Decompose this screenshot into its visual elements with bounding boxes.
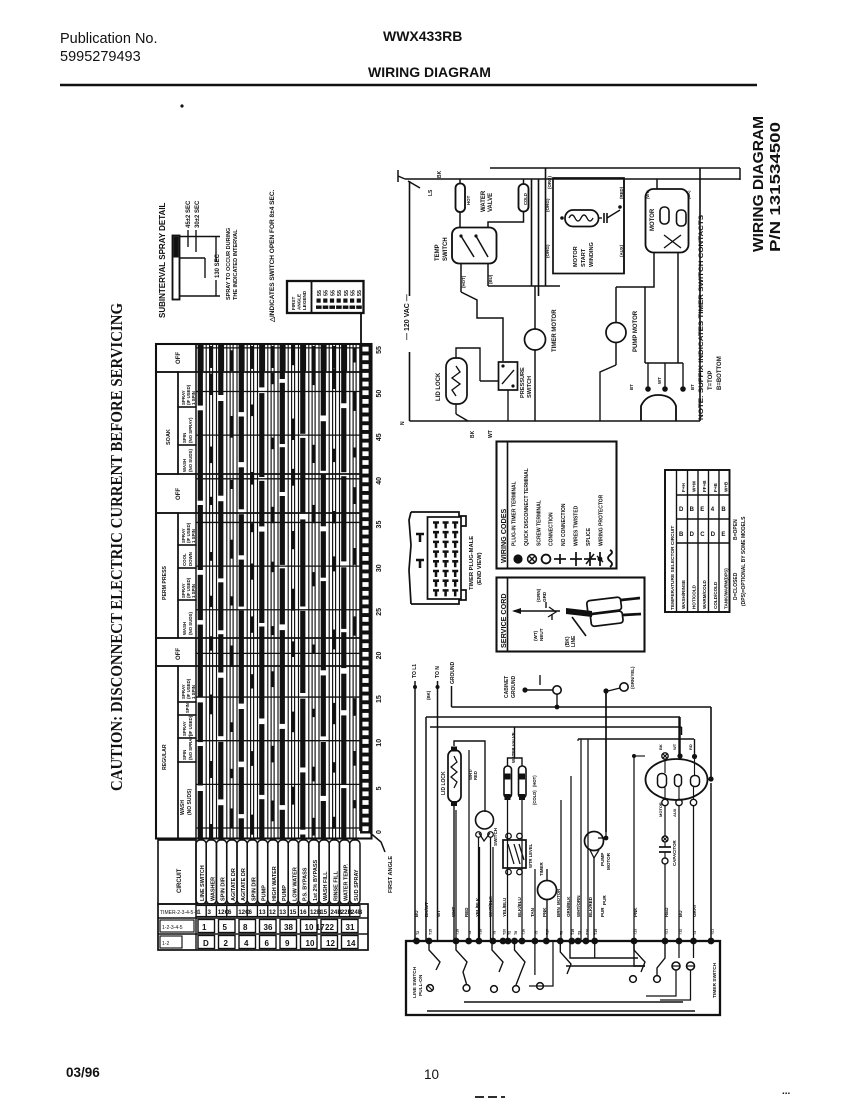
svg-text:(NO SPRAY): (NO SPRAY) xyxy=(188,417,193,443)
svg-text:TEMPERATURE SELECTOR CIRCUIT: TEMPERATURE SELECTOR CIRCUIT xyxy=(670,526,676,610)
svg-text:45±2 SEC: 45±2 SEC xyxy=(186,200,192,228)
svg-text:MOTOR: MOTOR xyxy=(658,802,663,817)
svg-text:LOW WATER: LOW WATER xyxy=(292,867,298,901)
svg-text:E: E xyxy=(700,507,704,513)
svg-text:(IF USED): (IF USED) xyxy=(188,715,193,736)
svg-text:BK: BK xyxy=(437,170,443,178)
svg-text:WIRING CODES: WIRING CODES xyxy=(499,508,508,563)
svg-text:6: 6 xyxy=(265,939,270,948)
svg-text:COOL: COOL xyxy=(182,553,187,566)
svg-text:WIRING PROTECTOR: WIRING PROTECTOR xyxy=(598,494,604,546)
svg-text:TO N: TO N xyxy=(435,666,441,678)
svg-text:TIMER PLUG-MALE: TIMER PLUG-MALE xyxy=(469,536,475,590)
svg-text:(WT): (WT) xyxy=(533,630,538,641)
svg-text:LID LOCK: LID LOCK xyxy=(441,771,447,795)
svg-text:BT: BT xyxy=(629,384,634,390)
svg-text:TO L1: TO L1 xyxy=(412,664,418,678)
svg-text:T8: T8 xyxy=(514,931,518,935)
svg-text:T=TOP: T=TOP xyxy=(708,371,714,390)
svg-text:WT: WT xyxy=(436,910,441,917)
svg-text:SWITCH: SWITCH xyxy=(527,376,533,398)
svg-text:TIMER: TIMER xyxy=(539,862,544,876)
svg-text:B=BOTTOM: B=BOTTOM xyxy=(717,356,723,390)
svg-text:1 SPIN: 1 SPIN xyxy=(191,685,196,699)
svg-text:PUMP: PUMP xyxy=(262,885,268,901)
svg-text:AUX: AUX xyxy=(672,808,677,817)
svg-text:HOT: HOT xyxy=(466,195,471,205)
svg-text:SERVICE CORD: SERVICE CORD xyxy=(499,593,508,648)
svg-text:T8: T8 xyxy=(468,931,472,935)
svg-text:WATER: WATER xyxy=(481,190,487,212)
svg-text:WIRING DIAGRAM: WIRING DIAGRAM xyxy=(368,64,491,80)
svg-text:TIMER-2-3-4-5-B: TIMER-2-3-4-5-B xyxy=(160,910,199,916)
svg-text:55: 55 xyxy=(317,290,323,296)
svg-text:03/96: 03/96 xyxy=(66,1065,100,1080)
svg-text:BLK/BLU: BLK/BLU xyxy=(517,897,522,917)
svg-text:5: 5 xyxy=(223,923,228,932)
svg-text:SPIN: SPIN xyxy=(182,433,187,443)
svg-text:E: E xyxy=(721,532,725,538)
svg-text:BLK/RED: BLK/RED xyxy=(588,896,593,917)
svg-text:REGULAR: REGULAR xyxy=(162,744,168,770)
svg-text:T16: T16 xyxy=(521,929,525,935)
svg-text:T15: T15 xyxy=(428,929,432,935)
svg-text:40: 40 xyxy=(376,477,383,485)
svg-text:LINE: LINE xyxy=(571,635,577,647)
svg-text:PUR: PUR xyxy=(600,907,605,917)
svg-text:MOTOR: MOTOR xyxy=(606,852,611,870)
svg-text:ANGLE: ANGLE xyxy=(297,294,302,310)
svg-text:NEUT: NEUT xyxy=(539,628,544,641)
svg-text:RED: RED xyxy=(473,771,478,780)
svg-text:FF+B: FF+B xyxy=(702,480,707,492)
svg-text:NO CONNECTION: NO CONNECTION xyxy=(561,503,567,546)
svg-text:1: 1 xyxy=(202,923,207,932)
svg-text:1st 2% BYPASS: 1st 2% BYPASS xyxy=(313,860,319,901)
svg-text:LINE SWITCH: LINE SWITCH xyxy=(412,966,418,998)
svg-text:SPLICE: SPLICE xyxy=(586,527,592,546)
svg-text:FIRST: FIRST xyxy=(291,297,296,310)
svg-text:(NO SUDS): (NO SUDS) xyxy=(187,789,193,815)
svg-text:(BK): (BK) xyxy=(426,690,431,700)
svg-text:T17: T17 xyxy=(546,929,550,935)
svg-text:SUD SPRAY: SUD SPRAY xyxy=(354,869,360,901)
svg-text:GROUND: GROUND xyxy=(511,675,517,698)
svg-text:(GRN/YEL): (GRN/YEL) xyxy=(630,666,635,689)
svg-text:B: B xyxy=(679,532,684,538)
svg-text:38: 38 xyxy=(284,923,293,932)
svg-text:22: 22 xyxy=(325,923,334,932)
svg-text:WATER TEMP.: WATER TEMP. xyxy=(344,863,350,901)
svg-text:(END VIEW): (END VIEW) xyxy=(477,552,483,585)
svg-text:— 120 VAC —: — 120 VAC — xyxy=(404,294,411,340)
svg-text:1-2-3-4-5: 1-2-3-4-5 xyxy=(162,925,183,931)
svg-text:55: 55 xyxy=(376,346,383,354)
svg-text:3: 3 xyxy=(207,909,211,916)
svg-text:B: B xyxy=(690,507,695,513)
svg-text:T18: T18 xyxy=(478,929,482,935)
svg-text:(GRN): (GRN) xyxy=(536,588,541,602)
svg-text:(HOT): (HOT) xyxy=(532,775,537,787)
svg-text:WT: WT xyxy=(672,743,677,750)
svg-text:WHT/ORN: WHT/ORN xyxy=(576,896,581,918)
svg-text:PUMP MOTOR: PUMP MOTOR xyxy=(633,310,639,352)
svg-text:CONNECTION: CONNECTION xyxy=(549,512,555,546)
svg-text:55: 55 xyxy=(357,290,363,296)
svg-text:LID LOCK: LID LOCK xyxy=(436,372,442,401)
svg-text:1 SPIN: 1 SPIN xyxy=(191,529,196,543)
svg-text:WASH: WASH xyxy=(182,622,187,635)
svg-text:SPRAY: SPRAY xyxy=(182,721,187,736)
svg-text:CAUTION: DISCONNECT ELECTRIC C: CAUTION: DISCONNECT ELECTRIC CURRENT BEF… xyxy=(107,303,126,791)
svg-text:T12: T12 xyxy=(678,929,682,935)
svg-text:TIMER MOTOR: TIMER MOTOR xyxy=(552,309,558,352)
svg-text:0: 0 xyxy=(376,830,383,834)
svg-text:SUBINTERVAL SPRAY DETAIL: SUBINTERVAL SPRAY DETAIL xyxy=(158,202,167,318)
svg-text:SPIN: SPIN xyxy=(182,750,187,760)
svg-text:RD: RD xyxy=(688,744,693,750)
svg-text:13: 13 xyxy=(279,909,286,916)
svg-text:WT: WT xyxy=(657,377,662,384)
svg-text:(HOT): (HOT) xyxy=(461,275,466,288)
svg-text:PRESSURE: PRESSURE xyxy=(520,367,526,398)
svg-text:WTR LEVEL: WTR LEVEL xyxy=(528,843,533,868)
svg-text:SPIN: SPIN xyxy=(185,703,190,713)
svg-text:BT: BT xyxy=(690,384,695,390)
svg-text:T2: T2 xyxy=(507,931,511,935)
svg-text:SWITCH: SWITCH xyxy=(493,827,498,846)
svg-text:45: 45 xyxy=(376,433,383,441)
svg-text:Publication No.: Publication No. xyxy=(60,31,158,47)
svg-text:VALVE: VALVE xyxy=(488,193,494,212)
svg-text:COLD/COLD: COLD/COLD xyxy=(713,581,718,609)
svg-text:B: B xyxy=(721,507,726,513)
svg-text:T2: T2 xyxy=(416,931,420,935)
svg-text:LS: LS xyxy=(428,189,434,196)
svg-text:OFF: OFF xyxy=(176,352,182,364)
svg-text:SPIN DIR: SPIN DIR xyxy=(221,877,227,901)
svg-text:GRD: GRD xyxy=(542,591,547,602)
svg-text:THE INDICATED INTERVAL: THE INDICATED INTERVAL xyxy=(233,229,239,300)
svg-text:P/N 131534500: P/N 131534500 xyxy=(767,122,784,252)
svg-text:BU: BU xyxy=(414,911,419,918)
svg-text:6: 6 xyxy=(248,909,252,916)
svg-text:PLUG-IN TIMER TERMINAL: PLUG-IN TIMER TERMINAL xyxy=(512,481,518,546)
svg-text:13: 13 xyxy=(259,909,266,916)
svg-text:C: C xyxy=(700,532,705,538)
svg-text:55: 55 xyxy=(337,290,343,296)
svg-text:4: 4 xyxy=(244,939,249,948)
svg-text:10: 10 xyxy=(376,739,383,747)
svg-text:T9: T9 xyxy=(492,931,496,935)
svg-text:16: 16 xyxy=(300,909,307,916)
svg-text:1-2: 1-2 xyxy=(162,941,169,947)
svg-text:T21: T21 xyxy=(664,929,668,935)
svg-text:T8: T8 xyxy=(560,931,564,935)
svg-text:D: D xyxy=(679,507,684,513)
svg-text:CAPACITOR: CAPACITOR xyxy=(672,839,677,866)
svg-text:W+M: W+M xyxy=(692,481,697,492)
svg-text:GROUND: GROUND xyxy=(450,661,456,684)
svg-text:1: 1 xyxy=(197,909,201,916)
svg-text:(BK): (BK) xyxy=(686,190,691,199)
svg-text:AGITATE DR: AGITATE DR xyxy=(231,868,237,901)
svg-text:W+B: W+B xyxy=(723,481,728,492)
svg-text:15: 15 xyxy=(289,909,296,916)
svg-text:SPRAY TO OCCUR DURING: SPRAY TO OCCUR DURING xyxy=(226,228,232,300)
svg-text:(COLD): (COLD) xyxy=(532,790,537,805)
svg-text:WINDING: WINDING xyxy=(589,242,595,267)
svg-text:30: 30 xyxy=(376,564,383,572)
svg-text:WASH: WASH xyxy=(182,459,187,472)
svg-text:AGITATE DR: AGITATE DR xyxy=(241,868,247,901)
svg-text:YEL/BLK: YEL/BLK xyxy=(475,897,480,917)
svg-text:YEL/BLU: YEL/BLU xyxy=(502,898,507,917)
svg-text:20: 20 xyxy=(376,652,383,660)
svg-text:55: 55 xyxy=(344,290,350,296)
svg-text:SPIN DIR: SPIN DIR xyxy=(251,877,257,901)
svg-text:5995279493: 5995279493 xyxy=(60,49,141,65)
svg-text:WARM/COLD: WARM/COLD xyxy=(702,579,707,609)
svg-text:55: 55 xyxy=(351,290,357,296)
svg-text:(ORG): (ORG) xyxy=(547,176,552,189)
svg-text:(WT): (WT) xyxy=(645,189,650,199)
svg-text:D: D xyxy=(690,532,695,538)
svg-text:8: 8 xyxy=(243,923,248,932)
svg-text:SOAK: SOAK xyxy=(166,429,172,445)
svg-text:△INDICATES SWITCH OPEN FOR 8±4: △INDICATES SWITCH OPEN FOR 8±4 SEC. xyxy=(269,189,276,323)
svg-text:35: 35 xyxy=(376,521,383,529)
svg-text:(ORG): (ORG) xyxy=(545,244,550,258)
svg-text:HIGH WATER: HIGH WATER xyxy=(272,866,278,901)
svg-text:12: 12 xyxy=(326,939,335,948)
svg-text:LEGEND: LEGEND xyxy=(302,290,307,310)
svg-text:WWX433RB: WWX433RB xyxy=(383,28,462,44)
svg-text:PNK: PNK xyxy=(542,907,547,917)
svg-text:D=CLOSED: D=CLOSED xyxy=(733,572,739,600)
svg-text:(DPS)=OPTIONAL BY SOME MODELS: (DPS)=OPTIONAL BY SOME MODELS xyxy=(741,516,747,606)
svg-text:10: 10 xyxy=(424,1067,439,1082)
svg-text:T19: T19 xyxy=(594,929,598,935)
svg-text:B=OPEN: B=OPEN xyxy=(733,519,739,540)
svg-text:LINE SWITCH: LINE SWITCH xyxy=(200,865,206,901)
svg-text:SWITCH: SWITCH xyxy=(443,237,449,261)
svg-text:T20: T20 xyxy=(502,929,506,935)
svg-text:5: 5 xyxy=(376,786,383,790)
svg-text:T19: T19 xyxy=(571,929,575,935)
svg-text:55: 55 xyxy=(324,290,330,296)
svg-text:F+B: F+B xyxy=(713,483,718,492)
svg-text:31: 31 xyxy=(346,923,355,932)
svg-text:GRAY: GRAY xyxy=(692,904,697,917)
svg-text:MOTOR: MOTOR xyxy=(573,246,579,267)
svg-text:PERM PRESS: PERM PRESS xyxy=(162,565,168,600)
svg-text:BRN: BRN xyxy=(556,907,561,917)
svg-text:QUICK DISCONNECT TERMINAL: QUICK DISCONNECT TERMINAL xyxy=(524,468,530,546)
svg-text:T3: T3 xyxy=(577,931,581,935)
svg-text:10 17: 10 17 xyxy=(305,923,326,932)
svg-text:WHT: WHT xyxy=(451,907,456,917)
svg-text:COLD: COLD xyxy=(523,193,528,205)
svg-text:12: 12 xyxy=(269,909,276,916)
svg-text:START: START xyxy=(581,248,587,267)
svg-text:14: 14 xyxy=(347,939,356,948)
svg-text:130 SEC: 130 SEC xyxy=(215,253,221,278)
svg-text:2: 2 xyxy=(224,939,229,948)
svg-text:(ORG): (ORG) xyxy=(545,198,550,212)
svg-text:PUMP: PUMP xyxy=(282,885,288,901)
svg-text:RED: RED xyxy=(464,907,469,917)
svg-text:HOT/COLD: HOT/COLD xyxy=(692,584,697,609)
svg-text:6: 6 xyxy=(228,909,232,916)
svg-text:N: N xyxy=(400,421,406,425)
svg-text:36: 36 xyxy=(264,923,273,932)
svg-text:PUR: PUR xyxy=(602,895,607,905)
svg-text:BK: BK xyxy=(658,744,663,750)
svg-text:15: 15 xyxy=(376,695,383,703)
svg-text:TANK/WARM(DPS): TANK/WARM(DPS) xyxy=(723,568,728,609)
svg-text:T10: T10 xyxy=(585,929,589,935)
svg-text:15: 15 xyxy=(320,909,327,916)
svg-text:WASH: WASH xyxy=(180,800,186,815)
svg-text:T5: T5 xyxy=(534,931,538,935)
svg-text:WASH FILL: WASH FILL xyxy=(323,871,329,901)
svg-text:WT: WT xyxy=(488,430,494,438)
svg-text:P.S. BYPASS: P.S. BYPASS xyxy=(303,867,309,901)
svg-text:NOTE: SUFFIX INDICATES TIMER S: NOTE: SUFFIX INDICATES TIMER SWITCH CONT… xyxy=(698,215,705,420)
svg-text:MOTOR: MOTOR xyxy=(650,208,656,231)
svg-text:T19: T19 xyxy=(455,929,459,935)
svg-text:CABINET: CABINET xyxy=(504,676,510,698)
svg-text:(NO SPRAY): (NO SPRAY) xyxy=(188,734,193,760)
svg-text:(NO SUDS): (NO SUDS) xyxy=(188,449,193,472)
svg-text:9: 9 xyxy=(285,939,290,948)
svg-text:OFF: OFF xyxy=(176,648,182,660)
svg-text:1 SPIN: 1 SPIN xyxy=(191,584,196,598)
svg-text:RINSE FILL: RINSE FILL xyxy=(333,870,339,901)
svg-text:DOWN: DOWN xyxy=(188,552,193,566)
svg-text:OFF: OFF xyxy=(176,488,182,500)
svg-text:CIRCUIT: CIRCUIT xyxy=(177,868,183,893)
svg-text:WIRES TWISTED: WIRES TWISTED xyxy=(574,505,580,546)
svg-text:(NO SUDS): (NO SUDS) xyxy=(188,612,193,635)
svg-text:TIMER SWITCH: TIMER SWITCH xyxy=(712,962,718,998)
svg-text:WIRING DIAGRAM: WIRING DIAGRAM xyxy=(750,116,767,252)
svg-text:WASH/RINSE: WASH/RINSE xyxy=(681,580,686,609)
svg-text:F+H: F+H xyxy=(681,483,686,492)
svg-text:10: 10 xyxy=(306,939,315,948)
svg-text:MOTOR: MOTOR xyxy=(556,888,561,905)
svg-text:30±2 SEC: 30±2 SEC xyxy=(195,200,201,228)
svg-text:WASHER: WASHER xyxy=(210,877,216,901)
svg-text:...: ... xyxy=(782,1086,791,1097)
svg-text:1 SPIN: 1 SPIN xyxy=(191,391,196,405)
svg-text:50: 50 xyxy=(376,390,383,398)
svg-text:55: 55 xyxy=(330,290,336,296)
svg-text:TAN: TAN xyxy=(530,908,535,917)
svg-text:25: 25 xyxy=(376,608,383,616)
svg-text:PUMP: PUMP xyxy=(600,853,605,866)
svg-text:T13: T13 xyxy=(633,929,637,935)
svg-text:ORN/BLK: ORN/BLK xyxy=(566,896,571,917)
svg-text:PULL-ON: PULL-ON xyxy=(418,974,424,996)
svg-text:FIRST ANGLE: FIRST ANGLE xyxy=(388,856,394,893)
svg-text:TEMP: TEMP xyxy=(435,244,441,261)
svg-text:T3: T3 xyxy=(693,931,697,935)
svg-text:BK: BK xyxy=(470,430,476,438)
svg-text:WHT/BLK: WHT/BLK xyxy=(488,896,493,917)
svg-text:D: D xyxy=(203,939,209,948)
svg-text:BK/WT: BK/WT xyxy=(424,902,429,917)
svg-text:24B: 24B xyxy=(351,909,363,916)
svg-text:(BU): (BU) xyxy=(488,274,493,284)
svg-text:D: D xyxy=(711,532,716,538)
svg-text:SCREW TERMINAL: SCREW TERMINAL xyxy=(536,500,542,546)
